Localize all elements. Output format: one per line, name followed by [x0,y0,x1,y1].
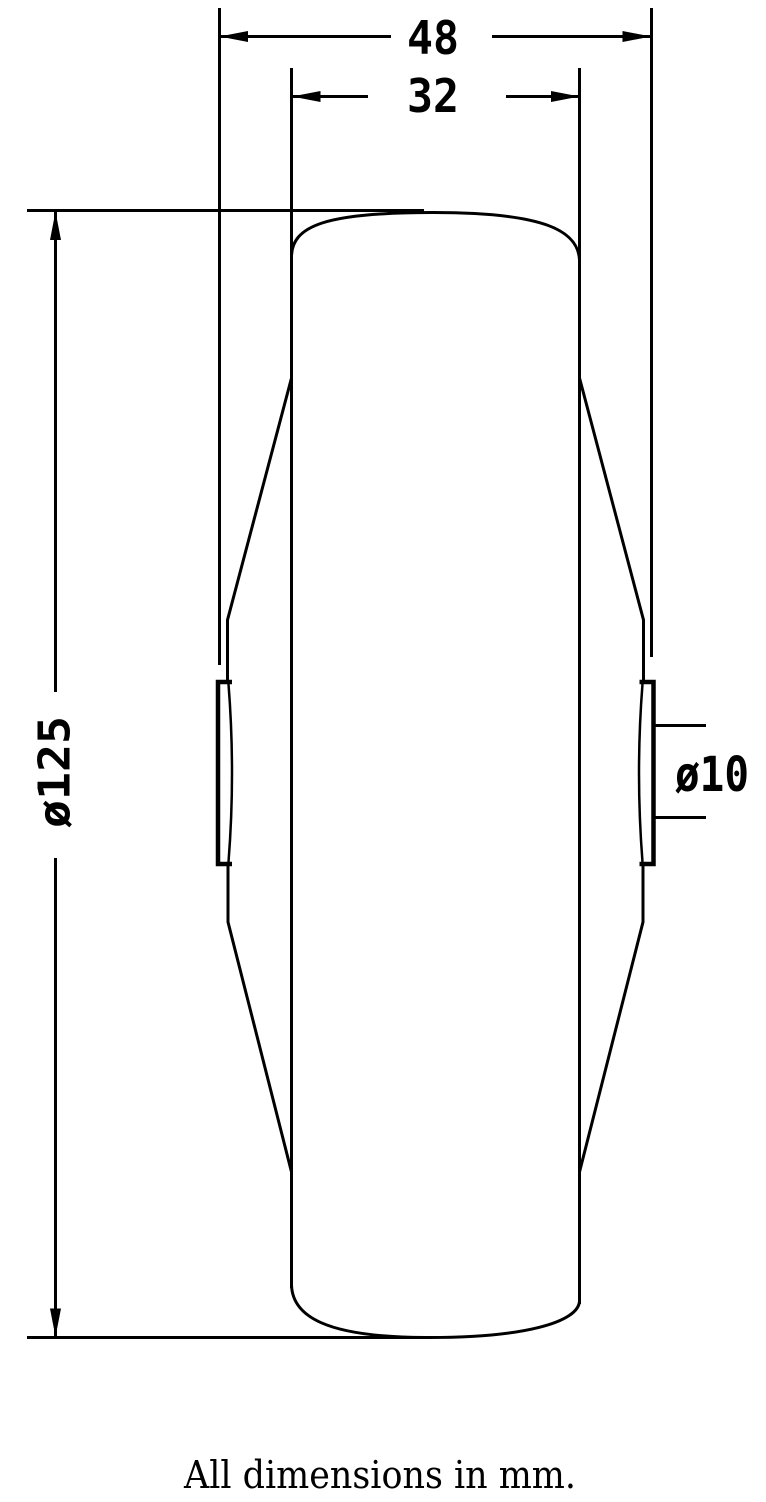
dimension-label-overall-width: 48 [407,11,459,65]
dimension-bore-diameter: ø10 [654,726,750,818]
arrowhead-dia125-top-icon [50,212,61,241]
hub-right-lower-taper [580,864,644,1172]
dimension-tread-width: 32 [292,69,580,123]
hub-right-boss-edge [639,684,643,862]
hub-left-upper-taper [228,378,292,682]
hub-right-upper-taper [580,378,644,682]
dimension-label-tread-width: 32 [407,69,459,123]
dimension-label-bore-diameter: ø10 [675,747,749,803]
wheel-tread-top-crown [292,213,580,261]
wheel-drawing-canvas: 48 32 ø125 [0,0,766,1502]
dimension-overall-width: 48 [219,11,651,65]
technical-drawing: 48 32 ø125 [0,0,766,1502]
hub-left-boss-edge [229,684,233,862]
hub-left-lower-taper [228,864,292,1172]
arrowhead-48-right-icon [623,31,652,42]
units-note: All dimensions in mm. [183,1453,576,1497]
arrowhead-dia125-bottom-icon [50,1309,61,1338]
arrowhead-32-left-icon [292,91,321,102]
dimension-label-wheel-diameter: ø125 [30,716,81,828]
wheel-tread-bottom-crown [292,1285,580,1338]
wheel-profile [218,68,654,1338]
extension-lines [27,8,652,1338]
dimension-wheel-diameter: ø125 [30,212,81,1338]
arrowhead-48-left-icon [220,31,249,42]
arrowhead-32-right-icon [551,91,580,102]
